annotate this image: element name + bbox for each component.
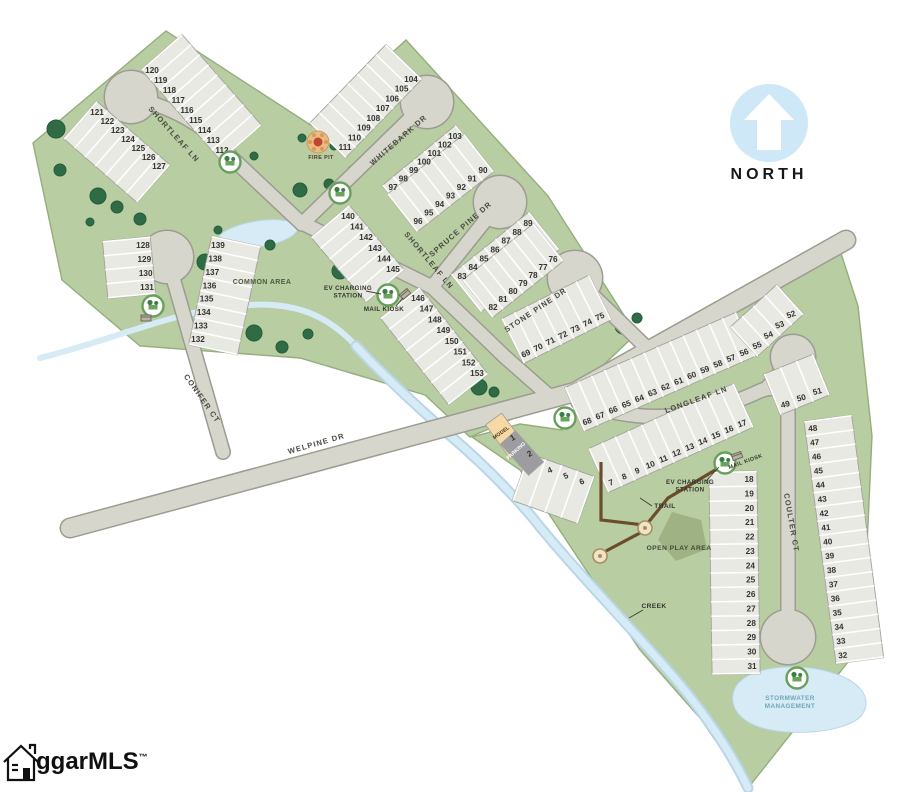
lot-number: 46 — [812, 452, 822, 462]
lot-number: 138 — [208, 254, 222, 263]
lot-number: 37 — [828, 580, 838, 590]
lot-number: 148 — [428, 315, 442, 324]
lot-number: 80 — [508, 287, 518, 296]
lot-number: 24 — [746, 561, 756, 570]
tree-icon — [298, 134, 306, 142]
lot-number: 45 — [813, 466, 823, 476]
lot-number: 25 — [746, 576, 756, 585]
lot-number: 117 — [172, 96, 186, 105]
lot-number: 134 — [197, 308, 211, 317]
label-common-area: COMMON AREA — [233, 279, 292, 286]
lot-number: 39 — [825, 551, 835, 561]
tree-icon — [293, 183, 307, 197]
lot-number: 33 — [836, 636, 846, 646]
lot-number: 131 — [140, 283, 154, 292]
trademark-symbol: ™ — [139, 752, 148, 762]
lot-number: 43 — [817, 495, 827, 505]
tree-icon — [134, 213, 146, 225]
lot-number: 149 — [436, 326, 450, 335]
tree-icon — [47, 120, 65, 138]
label-open-play-area: OPEN PLAY AREA — [646, 545, 711, 552]
fire-pit — [307, 131, 329, 153]
lot-number: 144 — [377, 254, 391, 263]
lot-number: 84 — [468, 263, 478, 272]
lot-number: 133 — [194, 322, 208, 331]
lot-number: 35 — [832, 608, 842, 618]
lot-number: 116 — [180, 106, 194, 115]
lot-number: 104 — [404, 75, 418, 84]
lot-number: 47 — [810, 438, 820, 448]
lot-number: 123 — [111, 126, 125, 135]
lot-number: 135 — [200, 295, 214, 304]
lot-number: 92 — [457, 183, 467, 192]
lot-number: 79 — [518, 279, 528, 288]
lot-number: 97 — [388, 183, 398, 192]
lot-number: 23 — [746, 547, 756, 556]
amenity-marker-icon — [143, 296, 164, 317]
lot-number: 48 — [808, 424, 818, 434]
lot-number: 125 — [131, 144, 145, 153]
lot-number: 34 — [834, 622, 844, 632]
lot-number: 145 — [386, 265, 400, 274]
amenity-marker-icon — [220, 152, 241, 173]
lot-number: 85 — [479, 254, 489, 263]
lot-number: 94 — [435, 200, 445, 209]
lot-number: 18 — [744, 475, 754, 484]
tree-icon — [632, 313, 642, 323]
north-label: NORTH — [727, 166, 811, 184]
amenity-marker-icon — [555, 408, 576, 429]
lot-number: 29 — [747, 633, 757, 642]
site-plan: 1201191181171161151141131121211221231241… — [0, 0, 906, 792]
lot-number: 30 — [747, 648, 757, 657]
lot-number: 83 — [457, 272, 467, 281]
lot-number: 27 — [747, 604, 757, 613]
lot-number: 21 — [745, 518, 755, 527]
lot-number: 120 — [145, 66, 159, 75]
lot-number: 118 — [163, 86, 177, 95]
lot-number: 90 — [478, 166, 488, 175]
lot-number: 20 — [745, 504, 755, 513]
tree-icon — [250, 152, 258, 160]
lot-number: 115 — [189, 116, 203, 125]
lot-number: 32 — [838, 651, 848, 661]
label-fire-pit: FIRE PIT — [308, 155, 334, 161]
tree-icon — [214, 226, 222, 234]
lot-number: 137 — [205, 268, 219, 277]
amenity-marker-icon — [787, 668, 808, 689]
lot-number: 152 — [462, 358, 476, 367]
lot-number: 26 — [746, 590, 756, 599]
lot-number: 109 — [357, 124, 371, 133]
lot-number: 77 — [538, 263, 548, 272]
lot-number: 89 — [523, 219, 533, 228]
lot-number: 150 — [445, 337, 459, 346]
lot-number: 130 — [139, 269, 153, 278]
lot-number: 122 — [100, 117, 114, 126]
lot-number: 153 — [470, 369, 484, 378]
lot-number: 129 — [137, 255, 151, 264]
lot-number: 76 — [548, 255, 558, 264]
lot-number: 78 — [528, 271, 538, 280]
tree-icon — [54, 164, 66, 176]
lot-number: 91 — [468, 175, 478, 184]
lot-number: 81 — [498, 295, 508, 304]
lot-number: 107 — [376, 104, 390, 113]
amenity-marker-icon — [378, 285, 399, 306]
lot-number: 121 — [90, 108, 104, 117]
lot-number: 41 — [821, 523, 831, 533]
tree-icon — [246, 325, 262, 341]
tree-icon — [276, 341, 288, 353]
label-stormwater: STORMWATERMANAGEMENT — [765, 695, 816, 710]
lot-number: 38 — [827, 565, 837, 575]
lot-number: 127 — [152, 162, 166, 171]
lot-number: 44 — [815, 480, 825, 490]
lot-number: 119 — [154, 76, 168, 85]
lot-number: 108 — [366, 114, 380, 123]
lot-number: 99 — [409, 166, 419, 175]
lot-number: 124 — [121, 135, 135, 144]
lot-number: 42 — [819, 509, 829, 519]
tree-icon — [90, 188, 106, 204]
lot-number: 100 — [417, 158, 431, 167]
lot-number: 19 — [745, 489, 755, 498]
lot-number: 113 — [207, 136, 221, 145]
lot-number: 40 — [823, 537, 833, 547]
lot-number: 36 — [830, 594, 840, 604]
north-indicator: NORTH — [727, 84, 811, 184]
lot-number: 136 — [203, 281, 217, 290]
tree-icon — [303, 329, 313, 339]
lot-number: 151 — [453, 348, 467, 357]
mail-kiosk-icon — [141, 315, 151, 321]
lot-number: 105 — [395, 85, 409, 94]
logo-text: ggarMLS™ — [36, 748, 148, 776]
lot-number: 141 — [350, 223, 364, 232]
lot-number: 128 — [136, 241, 150, 250]
lot-number: 95 — [424, 209, 434, 218]
tree-icon — [489, 387, 499, 397]
north-arrow-icon — [730, 84, 808, 162]
label-trail: TRAIL — [654, 503, 675, 510]
lot-number: 114 — [198, 126, 212, 135]
tree-icon — [111, 201, 123, 213]
lot-number: 139 — [211, 241, 225, 250]
lot-number: 98 — [399, 175, 409, 184]
lot-number: 88 — [512, 228, 522, 237]
lot-number: 87 — [501, 237, 511, 246]
lot-number: 96 — [413, 217, 423, 226]
lot-number: 126 — [142, 153, 156, 162]
label-mail-kiosk-west: MAIL KIOSK — [364, 306, 404, 313]
lot-number: 28 — [747, 619, 757, 628]
lot-number: 146 — [411, 294, 425, 303]
amenity-marker-icon — [330, 183, 351, 204]
lot-strip-coulter-west — [709, 471, 760, 675]
lot-number: 142 — [359, 233, 373, 242]
mls-logo: ggarMLS™ — [2, 738, 148, 786]
label-creek: CREEK — [641, 603, 666, 610]
lot-number: 143 — [368, 244, 382, 253]
lot-number: 140 — [341, 212, 355, 221]
lot-number: 82 — [488, 303, 498, 312]
tree-icon — [265, 240, 275, 250]
lot-number: 93 — [446, 192, 456, 201]
lot-number: 22 — [745, 533, 755, 542]
lot-number: 106 — [385, 94, 399, 103]
lot-number: 132 — [191, 335, 205, 344]
tree-icon — [86, 218, 94, 226]
lot-number: 110 — [348, 133, 362, 142]
lot-number: 86 — [490, 246, 500, 255]
lot-number: 147 — [420, 305, 434, 314]
lot-number: 31 — [747, 662, 757, 671]
lot-number: 111 — [339, 143, 352, 152]
